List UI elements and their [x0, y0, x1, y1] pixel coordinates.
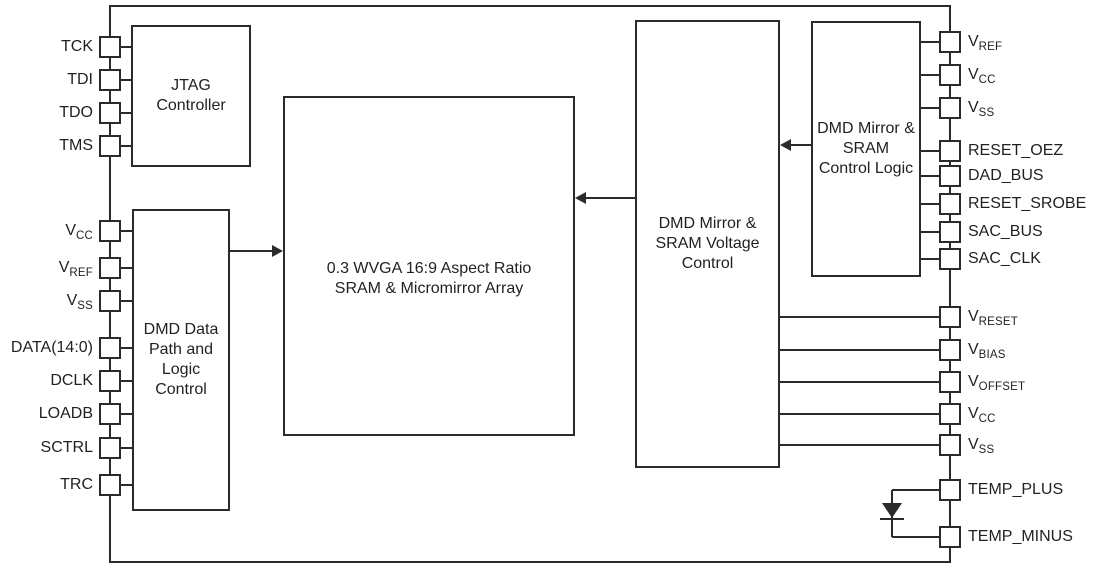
pin-label-v-cc: VCC: [968, 63, 996, 92]
pin-tdi: [99, 69, 121, 91]
pin-v-ss: [939, 434, 961, 456]
pin-wire-v-cc: [921, 74, 939, 76]
pin-label-tdi: TDI: [67, 68, 93, 92]
pin-wire-data-14-0: [121, 347, 132, 349]
pin-v-ref: [939, 31, 961, 53]
pin-sac-clk: [939, 248, 961, 270]
pin-label-sac-clk: SAC_CLK: [968, 247, 1041, 271]
pin-label-reset-oez: RESET_OEZ: [968, 139, 1063, 163]
pin-wire-sac-clk: [921, 258, 939, 260]
pin-tdo: [99, 102, 121, 124]
pin-wire-tms: [121, 145, 131, 147]
pin-reset-oez: [939, 140, 961, 162]
pin-wire-v-ss: [121, 300, 132, 302]
pin-wire-reset-srobe: [921, 203, 939, 205]
pin-label-temp-plus: TEMP_PLUS: [968, 478, 1063, 502]
pin-label-dad-bus: DAD_BUS: [968, 164, 1044, 188]
pin-sac-bus: [939, 221, 961, 243]
pin-wire-trc: [121, 484, 132, 486]
pin-wire-tdi: [121, 79, 131, 81]
pin-v-reset: [939, 306, 961, 328]
pin-label-v-reset: VRESET: [968, 305, 1018, 334]
pin-label-loadb: LOADB: [39, 402, 93, 426]
pin-v-offset: [939, 371, 961, 393]
pin-label-tdo: TDO: [59, 101, 93, 125]
pin-wire-sac-bus: [921, 231, 939, 233]
pin-dad-bus: [939, 165, 961, 187]
pin-wire-tck: [121, 46, 131, 48]
pin-sctrl: [99, 437, 121, 459]
pin-v-ss: [939, 97, 961, 119]
pin-wire-reset-oez: [921, 150, 939, 152]
pin-label-v-ss: VSS: [67, 289, 93, 318]
pin-label-v-offset: VOFFSET: [968, 370, 1025, 399]
pin-label-sctrl: SCTRL: [41, 436, 93, 460]
pin-label-dclk: DCLK: [50, 369, 93, 393]
pin-wire-v-ss: [921, 107, 939, 109]
pin-label-trc: TRC: [60, 473, 93, 497]
pin-wire-tdo: [121, 112, 131, 114]
pin-wire-v-ref: [921, 41, 939, 43]
pin-data-14-0: [99, 337, 121, 359]
pin-wire-v-cc: [780, 413, 939, 415]
pin-label-tms: TMS: [59, 134, 93, 158]
pin-wire-loadb: [121, 413, 132, 415]
pin-wire-v-ss: [780, 444, 939, 446]
pin-label-v-ss: VSS: [968, 96, 994, 125]
pin-v-ss: [99, 290, 121, 312]
pin-v-bias: [939, 339, 961, 361]
pin-label-reset-srobe: RESET_SROBE: [968, 192, 1086, 216]
pin-v-cc: [99, 220, 121, 242]
pin-trc: [99, 474, 121, 496]
pin-tms: [99, 135, 121, 157]
pin-dclk: [99, 370, 121, 392]
dmd-block-diagram: JTAG Controller DMD Data Path and Logic …: [0, 0, 1100, 571]
pin-label-v-ss: VSS: [968, 433, 994, 462]
pin-label-sac-bus: SAC_BUS: [968, 220, 1043, 244]
pin-label-data-14-0: DATA(14:0): [11, 336, 93, 360]
pin-label-v-cc: VCC: [968, 402, 996, 431]
pin-wire-dad-bus: [921, 175, 939, 177]
pin-reset-srobe: [939, 193, 961, 215]
pin-wire-dclk: [121, 380, 132, 382]
pin-wire-v-reset: [780, 316, 939, 318]
pin-tck: [99, 36, 121, 58]
pins-layer: TCKTDITDOTMSVCCVREFVSSDATA(14:0)DCLKLOAD…: [0, 0, 1100, 571]
pin-wire-v-bias: [780, 349, 939, 351]
pin-wire-v-offset: [780, 381, 939, 383]
pin-wire-sctrl: [121, 447, 132, 449]
pin-label-v-ref: VREF: [968, 30, 1002, 59]
pin-temp-minus: [939, 526, 961, 548]
pin-label-temp-minus: TEMP_MINUS: [968, 525, 1073, 549]
pin-v-cc: [939, 64, 961, 86]
pin-v-cc: [939, 403, 961, 425]
pin-loadb: [99, 403, 121, 425]
pin-label-v-ref: VREF: [59, 256, 93, 285]
pin-v-ref: [99, 257, 121, 279]
pin-wire-v-cc: [121, 230, 132, 232]
pin-label-tck: TCK: [61, 35, 93, 59]
pin-wire-v-ref: [121, 267, 132, 269]
pin-label-v-cc: VCC: [65, 219, 93, 248]
pin-label-v-bias: VBIAS: [968, 338, 1006, 367]
pin-temp-plus: [939, 479, 961, 501]
